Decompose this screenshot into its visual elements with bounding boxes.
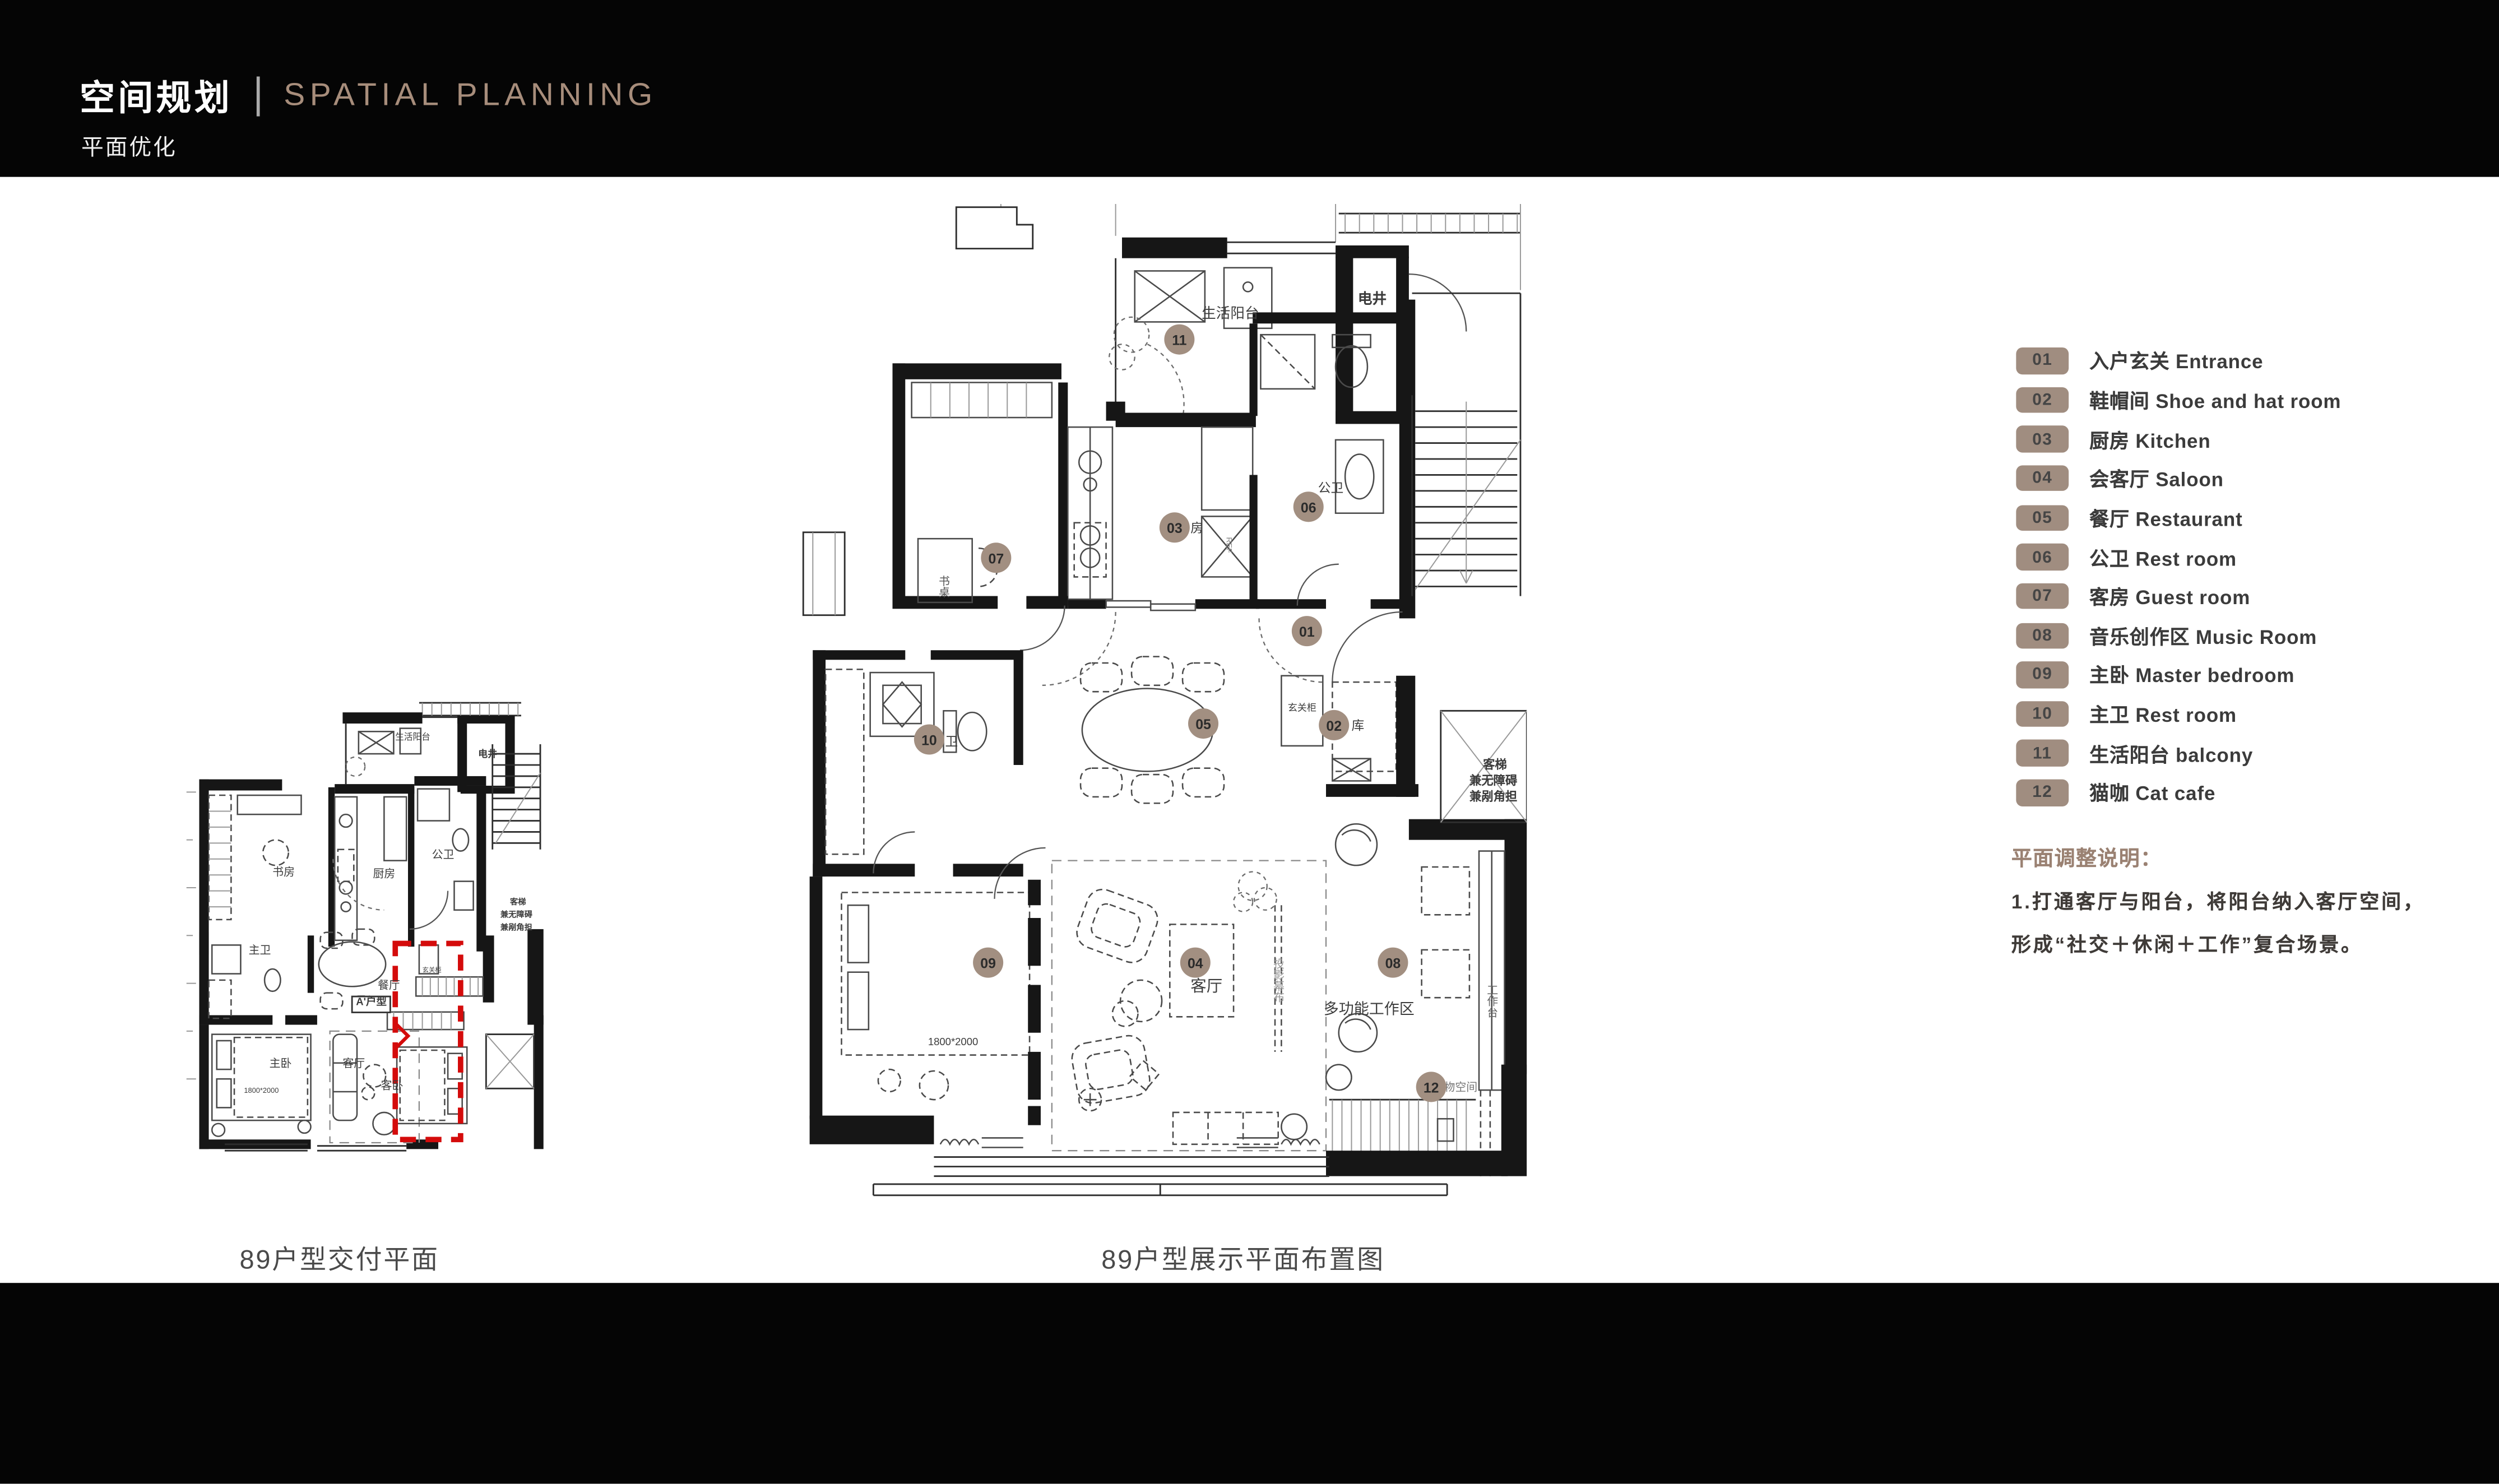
room-number-marker: 10 (914, 724, 944, 754)
room-label: 玄关柜 (1288, 704, 1316, 714)
room-label: 主卫 (249, 946, 271, 957)
legend-label: 会客厅 Saloon (2089, 464, 2224, 493)
page-title: 空间规划 SPATIAL PLANNING (80, 70, 657, 121)
room-label: 餐厅 (378, 981, 400, 992)
room-label: 兼剐角担 (1469, 791, 1517, 803)
display-floor-plan: 生活阳台电井公卫房REF书桌玄关柜库卫客厅1800*2000投影幕布多功能工作区… (778, 204, 1527, 1199)
legend-label: 鞋帽间 Shoe and hat room (2089, 386, 2341, 414)
room-label: 工作台 (1486, 984, 1497, 1018)
legend-label: 主卧 Master bedroom (2089, 661, 2294, 689)
legend-row: 02鞋帽间 Shoe and hat room (2016, 381, 2341, 420)
header-bar: 空间规划 SPATIAL PLANNING 平面优化 (0, 0, 2499, 177)
legend-number-badge: 04 (2016, 465, 2069, 491)
room-number-marker: 01 (1292, 616, 1322, 646)
room-label: 兼剐角担 (500, 925, 532, 933)
floor-plan-drawing-left (180, 697, 546, 1159)
room-label: 1800*2000 (928, 1038, 978, 1049)
room-number-marker: 03 (1160, 512, 1190, 542)
room-number-marker: 07 (981, 542, 1011, 573)
room-label: 卫 (945, 736, 958, 749)
room-number-marker: 06 (1293, 491, 1324, 522)
legend-number-badge: 05 (2016, 504, 2069, 531)
room-label: 客梯 (1483, 759, 1507, 771)
room-label: 兼无障碍 (1469, 775, 1517, 787)
room-label: REF (1223, 537, 1231, 553)
legend-row: 12猫咖 Cat cafe (2016, 773, 2341, 812)
legend-row: 11生活阳台 balcony (2016, 734, 2341, 773)
notes-heading: 平面调整说明： (2011, 842, 2451, 872)
legend-label: 主卫 Rest room (2089, 700, 2237, 729)
title-zh: 空间规划 (80, 70, 233, 121)
delivery-floor-plan: 生活阳台电井书房厨房公卫主卫餐厅玄关柜A'户型主卧客厅客卧1800*2000客梯… (180, 697, 546, 1159)
room-label: 客梯 (510, 899, 526, 907)
legend-number-badge: 09 (2016, 662, 2069, 688)
room-label: 主卧 (270, 1059, 292, 1070)
room-label: A'户型 (351, 996, 392, 1013)
floor-plan-drawing-right (778, 204, 1527, 1199)
plan-adjustment-notes: 平面调整说明： 1.打通客厅与阳台，将阳台纳入客厅空间，形成“社交＋休闲＋工作”… (2011, 842, 2451, 958)
legend-label: 客房 Guest room (2089, 582, 2250, 610)
legend-list: 01入户玄关 Entrance02鞋帽间 Shoe and hat room03… (2016, 341, 2341, 813)
room-number-marker: 02 (1319, 710, 1349, 740)
legend-number-badge: 01 (2016, 347, 2069, 374)
notes-line: 形成“社交＋休闲＋工作”复合场景。 (2011, 929, 2451, 958)
legend-row: 04会客厅 Saloon (2016, 459, 2341, 498)
legend-number-badge: 11 (2016, 740, 2069, 767)
caption-left-plan: 89户型交付平面 (239, 1239, 439, 1277)
room-number-marker: 09 (973, 948, 1003, 978)
room-label: 电井 (478, 750, 497, 760)
notes-line: 1.打通客厅与阳台，将阳台纳入客厅空间， (2011, 886, 2451, 915)
title-divider (257, 76, 260, 115)
legend-label: 公卫 Rest room (2089, 542, 2237, 571)
room-label: 厨房 (373, 869, 395, 880)
room-label: 书桌 (938, 576, 949, 598)
legend-number-badge: 07 (2016, 583, 2069, 610)
room-number-marker: 05 (1188, 708, 1218, 739)
room-label: 兼无障碍 (500, 912, 532, 920)
room-label: 库 (1352, 720, 1365, 733)
legend-label: 入户玄关 Entrance (2089, 346, 2263, 375)
room-number-marker: 12 (1416, 1072, 1446, 1102)
room-label: 公卫 (432, 850, 455, 861)
room-label: 多功能工作区 (1324, 1003, 1415, 1018)
room-label: 客卧 (381, 1081, 404, 1092)
legend-row: 08音乐创作区 Music Room (2016, 616, 2341, 655)
room-label: 客厅 (342, 1059, 365, 1070)
legend-label: 生活阳台 balcony (2089, 739, 2253, 768)
legend-row: 10主卫 Rest room (2016, 694, 2341, 734)
legend-number-badge: 08 (2016, 623, 2069, 649)
legend-number-badge: 03 (2016, 426, 2069, 452)
legend-label: 餐厅 Restaurant (2089, 503, 2242, 532)
room-label: 生活阳台 (395, 735, 430, 744)
room-label: 公卫 (1318, 483, 1344, 496)
legend-row: 06公卫 Rest room (2016, 537, 2341, 577)
legend-row: 01入户玄关 Entrance (2016, 341, 2341, 381)
room-label: 书房 (272, 868, 295, 879)
legend-number-badge: 10 (2016, 701, 2069, 727)
room-label: 电井 (1358, 293, 1387, 307)
legend-row: 07客房 Guest room (2016, 577, 2341, 616)
room-label: 玄关柜 (423, 967, 442, 973)
room-label: 房 (1190, 523, 1203, 536)
legend-number-badge: 12 (2016, 780, 2069, 806)
legend-label: 厨房 Kitchen (2089, 425, 2210, 453)
legend-label: 猫咖 Cat cafe (2089, 778, 2215, 807)
room-number-marker: 11 (1164, 324, 1194, 355)
room-label: 客厅 (1190, 980, 1222, 996)
legend-number-badge: 02 (2016, 387, 2069, 413)
legend-number-badge: 06 (2016, 544, 2069, 570)
room-number-marker: 08 (1378, 948, 1408, 978)
page-subtitle: 平面优化 (81, 131, 177, 163)
title-en: SPATIAL PLANNING (284, 77, 657, 114)
legend-row: 05餐厅 Restaurant (2016, 498, 2341, 537)
room-label: 1800*2000 (244, 1088, 279, 1096)
caption-right-plan: 89户型展示平面布置图 (1101, 1239, 1385, 1277)
footer-bar (0, 1283, 2499, 1483)
room-label: 生活阳台 (1202, 307, 1259, 321)
legend-row: 09主卧 Master bedroom (2016, 655, 2341, 694)
legend-label: 音乐创作区 Music Room (2089, 621, 2317, 650)
legend-row: 03厨房 Kitchen (2016, 420, 2341, 459)
room-number-marker: 04 (1180, 948, 1211, 978)
room-label: 投影幕布 (1273, 958, 1284, 1003)
slide: 空间规划 SPATIAL PLANNING 平面优化 (0, 0, 2499, 1483)
